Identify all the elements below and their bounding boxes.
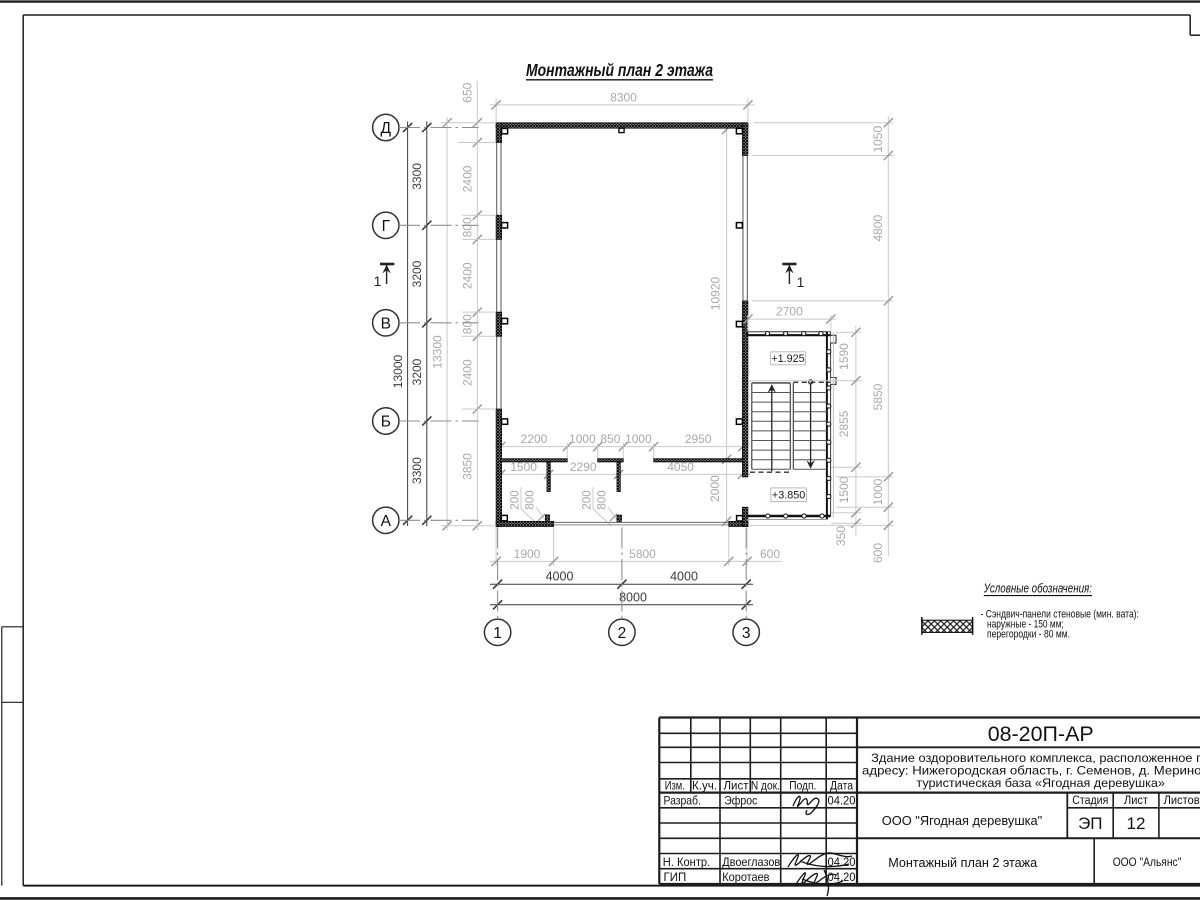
svg-text:8300: 8300 [610,91,637,105]
svg-text:1000: 1000 [871,478,885,505]
svg-text:2400: 2400 [461,165,475,192]
svg-text:1: 1 [493,625,502,642]
svg-text:800: 800 [525,490,537,509]
svg-text:ООО "Альянс": ООО "Альянс" [1113,857,1182,869]
svg-text:600: 600 [871,543,885,563]
svg-text:ООО "Ягодная деревушка": ООО "Ягодная деревушка" [882,813,1043,828]
svg-text:5850: 5850 [871,383,885,410]
svg-text:А: А [381,513,392,530]
svg-text:08-20П-АР: 08-20П-АР [988,722,1094,746]
svg-text:1050: 1050 [871,126,885,153]
svg-text:200: 200 [510,490,522,509]
svg-text:10920: 10920 [709,276,723,310]
svg-text:850: 850 [600,432,620,446]
svg-text:3300: 3300 [410,163,424,190]
svg-text:Условные обозначения:: Условные обозначения: [983,582,1092,596]
svg-text:4000: 4000 [546,570,574,584]
svg-text:В: В [381,315,391,332]
svg-text:2400: 2400 [461,359,475,386]
svg-text:N док.: N док. [751,781,780,793]
svg-text:200: 200 [582,490,594,509]
svg-text:Коротаев: Коротаев [722,870,769,884]
svg-text:13300: 13300 [430,335,444,369]
svg-text:3200: 3200 [410,358,424,385]
svg-text:1900: 1900 [514,547,541,561]
svg-text:Монтажный план 2 этажа: Монтажный план 2 этажа [888,855,1038,870]
svg-text:8000: 8000 [619,590,647,604]
svg-text:13000: 13000 [391,354,405,388]
svg-text:+3.850: +3.850 [772,490,805,502]
svg-text:Монтажный план 2 этажа: Монтажный план 2 этажа [526,60,713,80]
svg-text:2: 2 [618,625,627,642]
svg-text:4800: 4800 [871,215,885,242]
svg-text:3300: 3300 [410,457,424,484]
svg-text:Подп.: Подп. [789,781,816,793]
svg-text:Листов: Листов [1164,795,1200,807]
svg-text:2200: 2200 [521,432,548,446]
svg-text:650: 650 [461,82,475,102]
svg-text:Изм.: Изм. [665,781,685,793]
svg-text:1000: 1000 [625,432,652,446]
svg-text:5800: 5800 [629,547,656,561]
svg-text:800: 800 [461,217,475,237]
svg-text:ГИП: ГИП [664,870,687,884]
svg-text:1590: 1590 [837,343,851,370]
svg-text:Г: Г [382,218,391,235]
svg-text:Лист: Лист [1124,795,1149,807]
svg-text:600: 600 [760,547,780,561]
svg-text:800: 800 [461,314,475,334]
svg-text:К.уч.: К.уч. [692,781,717,793]
svg-text:1: 1 [797,274,805,290]
svg-text:ЭП: ЭП [1078,814,1102,833]
svg-text:2290: 2290 [570,460,597,474]
svg-text:2855: 2855 [837,410,851,437]
svg-text:3850: 3850 [461,453,475,480]
svg-text:12: 12 [1127,814,1146,833]
svg-text:350: 350 [834,526,848,546]
svg-text:Двоеглазов: Двоеглазов [722,855,780,869]
svg-text:3: 3 [742,625,751,642]
svg-text:800: 800 [597,490,609,509]
svg-text:Дата: Дата [830,781,854,793]
svg-text:1000: 1000 [569,432,596,446]
svg-text:+1.925: +1.925 [771,353,804,365]
svg-text:Эфрос: Эфрос [724,794,757,808]
svg-text:Разраб.: Разраб. [664,794,701,808]
svg-text:2000: 2000 [708,475,722,502]
svg-text:2700: 2700 [776,305,803,319]
svg-text:04.20: 04.20 [828,794,856,808]
svg-text:4000: 4000 [670,570,698,584]
svg-text:Лист: Лист [724,781,750,793]
svg-text:Б: Б [381,414,391,431]
svg-text:2950: 2950 [685,432,712,446]
svg-text:3200: 3200 [410,260,424,287]
svg-text:1: 1 [374,273,382,289]
svg-text:Д: Д [381,120,392,137]
svg-text:туристическая база «Ягодная де: туристическая база «Ягодная деревушка» [916,776,1165,790]
svg-text:перегородки - 80 мм.: перегородки - 80 мм. [987,629,1070,641]
svg-text:1500: 1500 [837,476,851,503]
svg-text:2400: 2400 [461,262,475,289]
svg-text:Стадия: Стадия [1072,795,1108,807]
svg-text:Н. Контр.: Н. Контр. [663,855,710,869]
